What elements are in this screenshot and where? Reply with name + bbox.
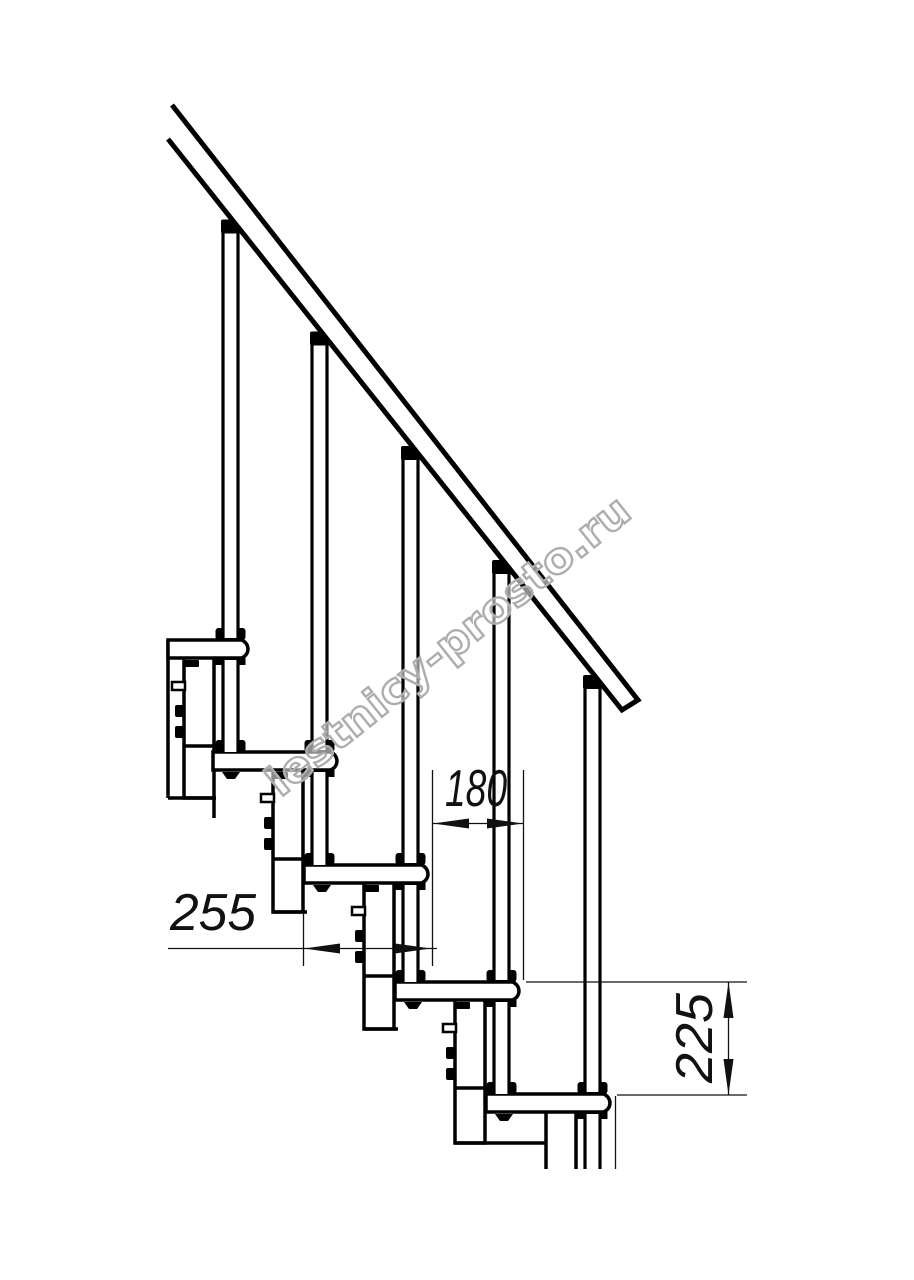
- stringer-module-3: [364, 882, 394, 1029]
- dimension-225: 225: [526, 982, 747, 1095]
- dimension-value-225: 225: [666, 992, 724, 1084]
- arrow-left-icon: [433, 819, 469, 829]
- tread-3: [304, 865, 428, 883]
- staircase-technical-drawing: 255 180 225 lestnicy-prosto.ru: [0, 0, 914, 1280]
- arrow-down-icon: [724, 1059, 734, 1095]
- arrow-left-icon: [304, 944, 340, 954]
- tread-4: [395, 982, 519, 1000]
- dimension-value-255: 255: [169, 884, 257, 942]
- dimension-value-180: 180: [445, 760, 507, 818]
- arrow-up-icon: [724, 982, 734, 1018]
- tread-1: [168, 640, 248, 658]
- drawing-page: 255 180 225 lestnicy-prosto.ru: [0, 0, 914, 1280]
- stringer-module-4: [455, 999, 485, 1143]
- tread-5: [486, 1094, 610, 1112]
- stringer-module-5: [546, 1112, 576, 1169]
- stringer-module-1: [184, 657, 214, 798]
